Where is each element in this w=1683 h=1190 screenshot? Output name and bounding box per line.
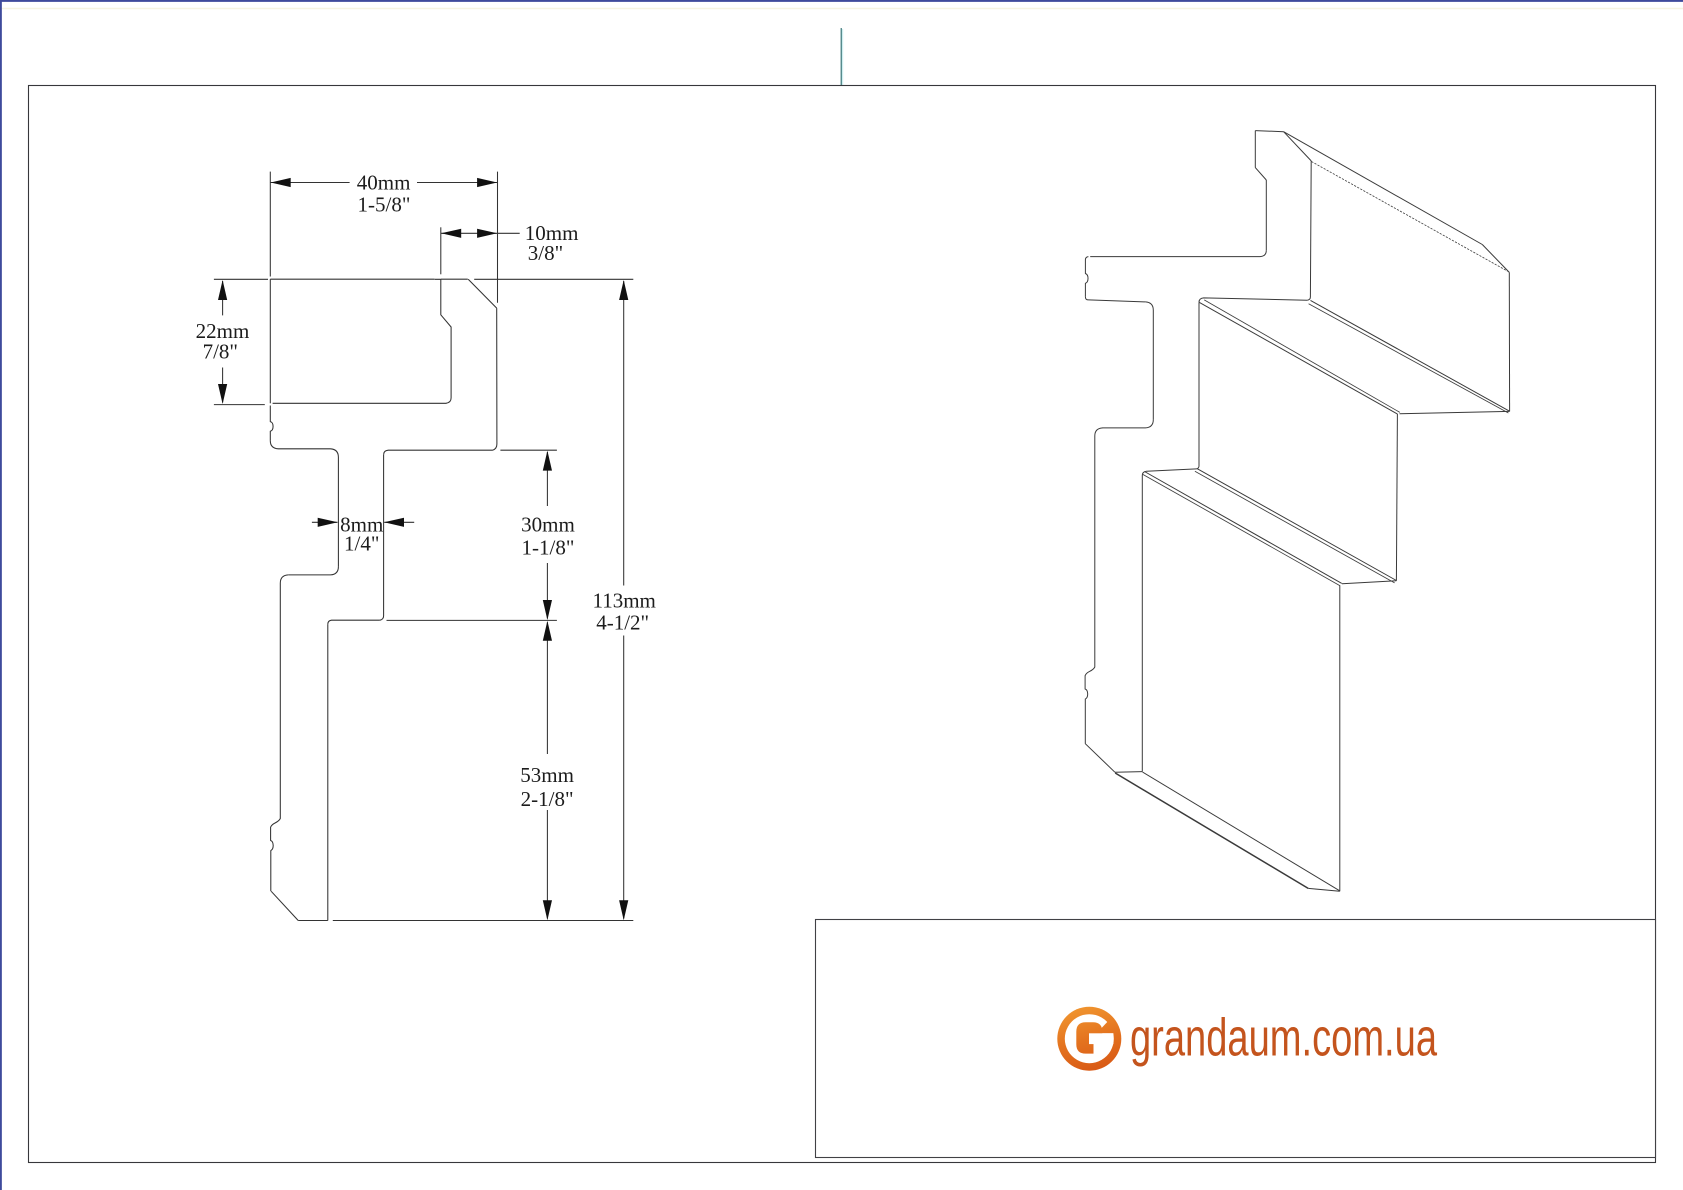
svg-text:53mm: 53mm xyxy=(520,763,574,787)
svg-text:grandaum.com.ua: grandaum.com.ua xyxy=(1130,1008,1437,1067)
svg-text:40mm: 40mm xyxy=(357,171,411,195)
svg-text:4-1/2": 4-1/2" xyxy=(596,611,649,635)
svg-text:30mm: 30mm xyxy=(521,512,575,536)
svg-text:1-1/8": 1-1/8" xyxy=(522,536,575,560)
svg-text:113mm: 113mm xyxy=(593,589,656,613)
svg-text:1/4": 1/4" xyxy=(344,532,379,556)
svg-text:2-1/8": 2-1/8" xyxy=(521,787,574,811)
svg-text:3/8": 3/8" xyxy=(528,241,563,265)
svg-text:7/8": 7/8" xyxy=(203,340,238,364)
svg-text:1-5/8": 1-5/8" xyxy=(358,192,411,216)
